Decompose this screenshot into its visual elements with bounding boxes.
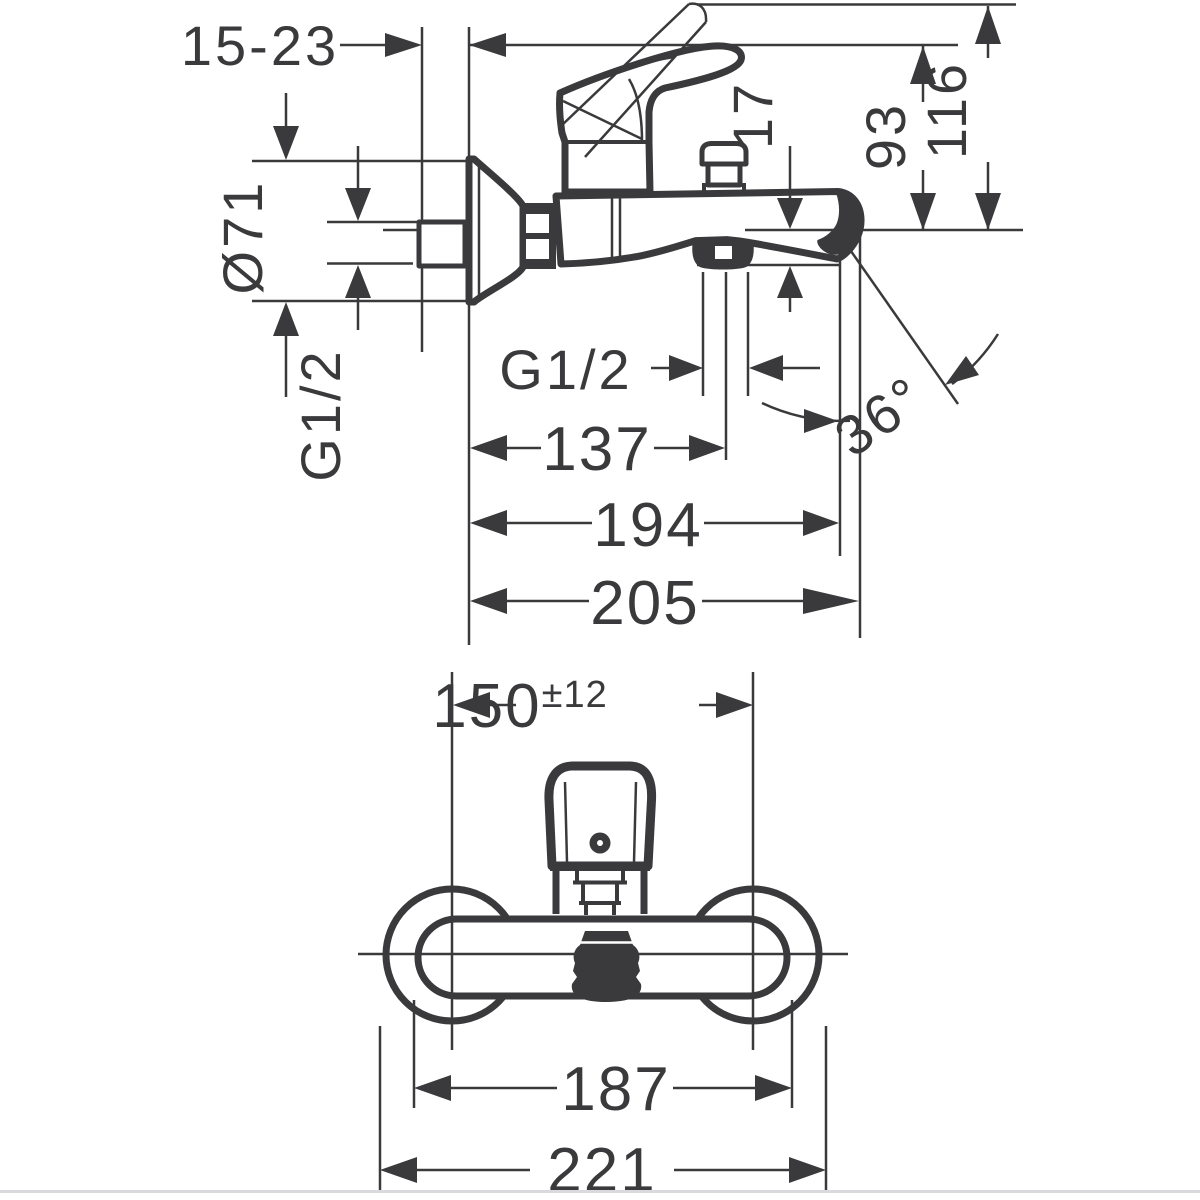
- dim-inlet-thread: G1/2: [289, 146, 371, 482]
- diverter-knob-base: [704, 185, 744, 193]
- union-nut-flat-top: [526, 214, 549, 233]
- dim-187-arrow-left: [414, 1075, 451, 1101]
- dim-137-label: 137: [542, 415, 651, 484]
- dim-wall-depth-arrow-left: [385, 33, 422, 57]
- dim-outlet-arrow-left: [669, 355, 703, 381]
- dim-116-arrow-bottom: [975, 193, 1001, 230]
- dim-150-tolerance: ±12: [542, 674, 608, 716]
- union-ext-lines: [327, 222, 418, 264]
- union-nut-flat-bottom: [526, 239, 549, 259]
- dim-150-value: 150: [432, 672, 541, 741]
- angle-arrow-right: [945, 356, 979, 385]
- dim-connection-distance: 150±12: [432, 672, 753, 741]
- escutcheon-cone: [469, 159, 523, 302]
- front-view: 150±12 187 221: [358, 672, 848, 1200]
- dim-inlet-arrow-top: [345, 188, 371, 221]
- dim-221-arrow-right: [789, 1157, 826, 1183]
- dim-17-arrow-bottom: [777, 266, 803, 298]
- dim-escutcheon-diameter: Ø71: [211, 93, 299, 397]
- wall-union-block: [419, 222, 465, 266]
- bath-mixer-dimension-drawing: 15-23 Ø71 G1/2 116 93: [0, 0, 1200, 1200]
- dim-194-arrow-right: [803, 510, 839, 536]
- shower-outlet-hole: [715, 246, 732, 259]
- side-view: 15-23 Ø71 G1/2 116 93: [181, 4, 1023, 645]
- dim-116-arrow-top: [975, 6, 1001, 44]
- dim-93-arrow-bottom: [910, 193, 936, 230]
- dim-137-arrow-left: [470, 435, 507, 461]
- dim-221-arrow-left: [380, 1157, 417, 1183]
- dim-outlet-label: G1/2: [499, 338, 632, 401]
- handle-front: [549, 766, 652, 915]
- dim-inlet-label: G1/2: [289, 348, 352, 481]
- dim-187-arrow-right: [755, 1075, 792, 1101]
- cartridge-steps: [573, 871, 627, 915]
- diverter-knob-neck: [708, 164, 740, 185]
- dim-spout-angle: 36°: [762, 244, 998, 469]
- handle-screw-dot-center: [597, 840, 603, 846]
- dim-escutcheon-arrow-bottom: [273, 302, 299, 336]
- dim-205-arrow-left: [470, 588, 507, 614]
- cartridge-collar: [556, 871, 644, 914]
- dim-outlet-thread: G1/2: [499, 272, 820, 401]
- union-nut: [520, 203, 556, 269]
- outlet-front: [572, 931, 641, 1002]
- dim-wall-depth: 15-23: [181, 14, 506, 77]
- dim-137-arrow-right: [689, 435, 725, 461]
- dim-93-label: 93: [854, 102, 917, 170]
- dim-187-label: 187: [561, 1055, 670, 1124]
- dim-150-label: 150±12: [432, 672, 608, 741]
- dim-escutcheon-label: Ø71: [211, 180, 274, 295]
- dim-205-arrow-right: [803, 588, 859, 614]
- dim-total-reach: 205: [470, 232, 860, 638]
- dim-205-label: 205: [590, 569, 699, 638]
- dim-194-arrow-left: [470, 510, 507, 536]
- dim-wall-depth-arrow-right: [469, 33, 506, 57]
- dim-escutcheon-arrow-top: [273, 126, 299, 160]
- dim-17-label: 17: [721, 81, 784, 149]
- dim-194-label: 194: [593, 491, 702, 560]
- dim-150-arrow-right: [716, 692, 753, 718]
- dim-inlet-arrow-bottom: [345, 265, 371, 298]
- dim-wall-depth-label: 15-23: [181, 14, 339, 77]
- dim-outlet-arrow-right: [749, 355, 783, 381]
- technical-drawing-page: 15-23 Ø71 G1/2 116 93: [0, 0, 1200, 1200]
